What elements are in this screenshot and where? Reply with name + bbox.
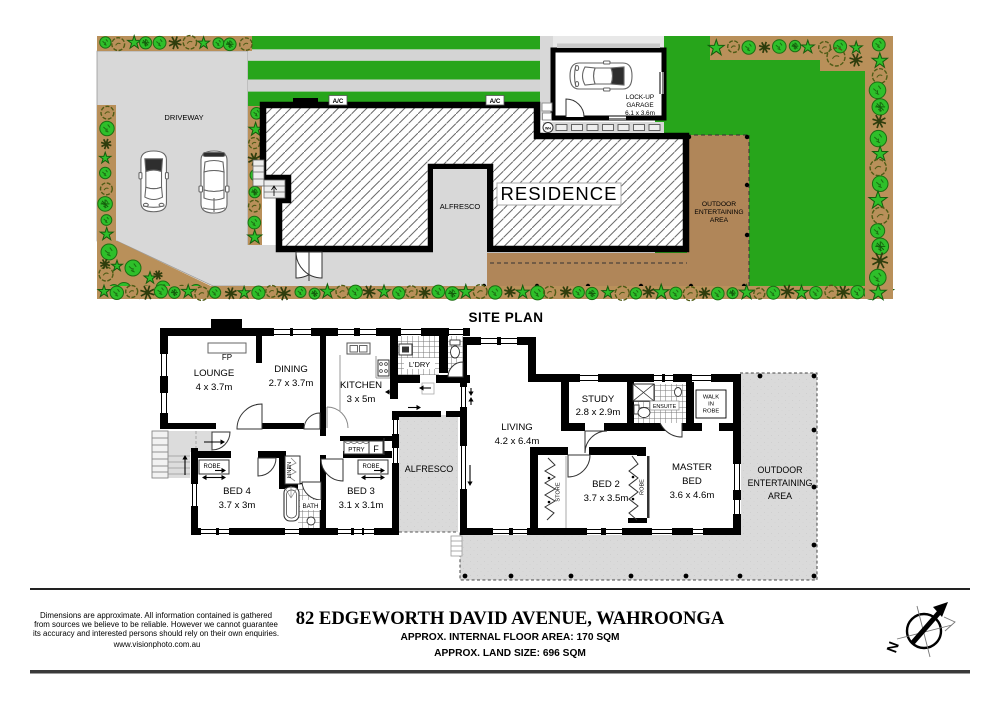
svg-text:APPROX. INTERNAL FLOOR AREA: 1: APPROX. INTERNAL FLOOR AREA: 170 SQM — [400, 632, 619, 643]
svg-text:KITCHEN: KITCHEN — [340, 380, 382, 391]
svg-text:F: F — [373, 444, 379, 454]
svg-text:3.1 x 3.1m: 3.1 x 3.1m — [339, 500, 384, 511]
svg-text:AREA: AREA — [768, 491, 792, 501]
svg-text:LIVING: LIVING — [501, 422, 532, 433]
svg-text:A/C: A/C — [490, 98, 501, 105]
svg-text:ENSUITE: ENSUITE — [653, 404, 677, 410]
svg-text:Dimensions are approximate.: Dimensions are approximate. All informat… — [40, 611, 272, 620]
svg-text:LOUNGE: LOUNGE — [194, 368, 235, 379]
svg-text:82 EDGEWORTH DAVID AVENUE, WAH: 82 EDGEWORTH DAVID AVENUE, WAHROONGA — [296, 608, 725, 629]
svg-text:A/C: A/C — [333, 98, 344, 105]
svg-text:LOCK-UP: LOCK-UP — [626, 94, 654, 101]
svg-text:www.visionphoto.com.au: www.visionphoto.com.au — [113, 640, 201, 649]
svg-text:BED 4: BED 4 — [223, 486, 251, 497]
svg-text:2.8 x 2.9m: 2.8 x 2.9m — [576, 407, 621, 418]
svg-text:BED 3: BED 3 — [347, 486, 375, 497]
svg-text:IN: IN — [708, 402, 714, 408]
svg-text:DRIVEWAY: DRIVEWAY — [164, 113, 203, 122]
svg-text:ALFRESCO: ALFRESCO — [405, 464, 454, 474]
svg-text:APPROX. LAND SIZE: 696 SQM: APPROX. LAND SIZE: 696 SQM — [434, 648, 586, 659]
svg-text:BED: BED — [682, 476, 702, 487]
svg-text:ROBE: ROBE — [640, 479, 646, 495]
svg-text:3.7 x 3m: 3.7 x 3m — [219, 500, 256, 511]
svg-text:FP: FP — [222, 353, 232, 362]
svg-text:LINEN: LINEN — [287, 462, 293, 478]
svg-text:MASTER: MASTER — [672, 462, 712, 473]
svg-text:3.6 x 4.6m: 3.6 x 4.6m — [670, 490, 715, 501]
svg-text:SITE PLAN: SITE PLAN — [468, 310, 543, 325]
svg-text:3 x 5m: 3 x 5m — [347, 394, 376, 405]
svg-text:4 x 3.7m: 4 x 3.7m — [196, 382, 233, 393]
svg-text:ENTERTAINING: ENTERTAINING — [694, 209, 743, 216]
svg-text:2.7 x 3.7m: 2.7 x 3.7m — [269, 378, 314, 389]
svg-text:its accuracy and interested pe: its accuracy and interested persons shou… — [33, 629, 279, 638]
svg-text:OUTDOOR: OUTDOOR — [758, 465, 803, 475]
svg-text:WH: WH — [545, 127, 551, 131]
svg-text:RESIDENCE: RESIDENCE — [501, 183, 618, 204]
svg-text:3.7 x 3.5m: 3.7 x 3.5m — [584, 493, 629, 504]
svg-text:ROBE: ROBE — [362, 464, 379, 470]
svg-text:WALK: WALK — [703, 395, 719, 401]
svg-text:ENTERTAINING: ENTERTAINING — [748, 478, 813, 488]
svg-text:from sources we believe to be: from sources we believe to be reliable. … — [34, 620, 278, 629]
svg-text:DINING: DINING — [274, 364, 308, 375]
svg-text:BED 2: BED 2 — [592, 479, 620, 490]
svg-text:6.1 x 3.6m: 6.1 x 3.6m — [625, 110, 655, 117]
svg-text:BATH: BATH — [302, 503, 318, 510]
svg-text:STORE: STORE — [556, 482, 562, 501]
svg-text:OUTDOOR: OUTDOOR — [702, 201, 736, 208]
svg-text:PTRY: PTRY — [348, 447, 364, 454]
svg-text:ROBE: ROBE — [703, 409, 720, 415]
svg-text:GARAGE: GARAGE — [626, 102, 653, 109]
svg-text:STUDY: STUDY — [582, 394, 615, 405]
svg-text:AREA: AREA — [710, 217, 729, 224]
svg-text:L'DRY: L'DRY — [409, 360, 430, 369]
svg-text:ALFRESCO: ALFRESCO — [440, 202, 481, 211]
svg-text:ROBE: ROBE — [203, 464, 220, 470]
svg-text:4.2 x 6.4m: 4.2 x 6.4m — [495, 436, 540, 447]
